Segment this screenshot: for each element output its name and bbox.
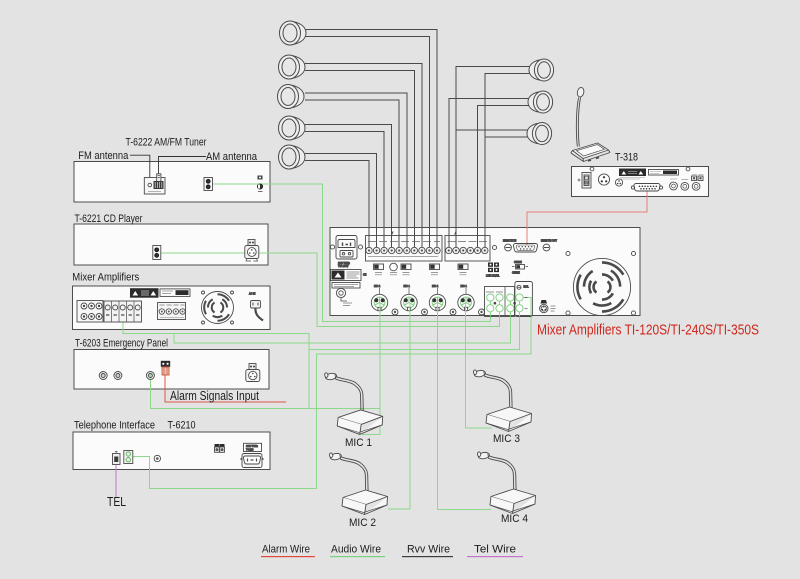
svg-text:AM antenna: AM antenna [206,151,258,163]
svg-text:MIC 1: MIC 1 [345,437,372,449]
svg-text:MIC 2: MIC 2 [349,517,376,529]
svg-text:T-318: T-318 [615,152,638,164]
svg-text:T6A 250V: T6A 250V [338,265,349,268]
svg-text:T-6221 CD Player: T-6221 CD Player [75,213,143,225]
svg-text:MIC 1: MIC 1 [374,285,381,288]
svg-text:Audio Wire: Audio Wire [331,544,381,556]
svg-text:AC IN: AC IN [249,293,256,296]
svg-text:REMOTE IN: REMOTE IN [503,240,517,243]
svg-text:Mixer Amplifiers: Mixer Amplifiers [72,272,139,284]
svg-text:MOL: MOL [524,286,530,289]
svg-text:FM antenna: FM antenna [78,150,129,162]
svg-text:T-6210: T-6210 [246,448,254,451]
svg-text:Tel Wire: Tel Wire [474,544,516,556]
svg-text:T-6210: T-6210 [168,420,196,432]
svg-text:Rvv Wire: Rvv Wire [407,544,450,556]
svg-text:REMOTE OUT: REMOTE OUT [541,240,557,243]
svg-text:Mixer Amplifiers TI-120S/TI-24: Mixer Amplifiers TI-120S/TI-240S/TI-350S [537,323,759,339]
svg-text:T-6203 Emergency Panel: T-6203 Emergency Panel [75,338,168,350]
svg-text:CHIME: CHIME [514,261,522,264]
svg-text:T-6222 AM/FM Tuner: T-6222 AM/FM Tuner [126,137,207,149]
svg-text:TEL: TEL [107,495,126,509]
svg-text:Alarm Wire: Alarm Wire [262,544,310,556]
svg-text:CHIME: CHIME [512,272,520,275]
svg-text:CE: CE [363,274,367,277]
svg-text:Telephone Interface: Telephone Interface [74,420,155,432]
svg-text:MIC 3: MIC 3 [493,433,520,445]
svg-text:LINE LEVEL: LINE LEVEL [486,275,500,278]
svg-text:MIC 4: MIC 4 [501,513,528,525]
svg-text:Alarm Signals Input: Alarm Signals Input [170,389,259,403]
